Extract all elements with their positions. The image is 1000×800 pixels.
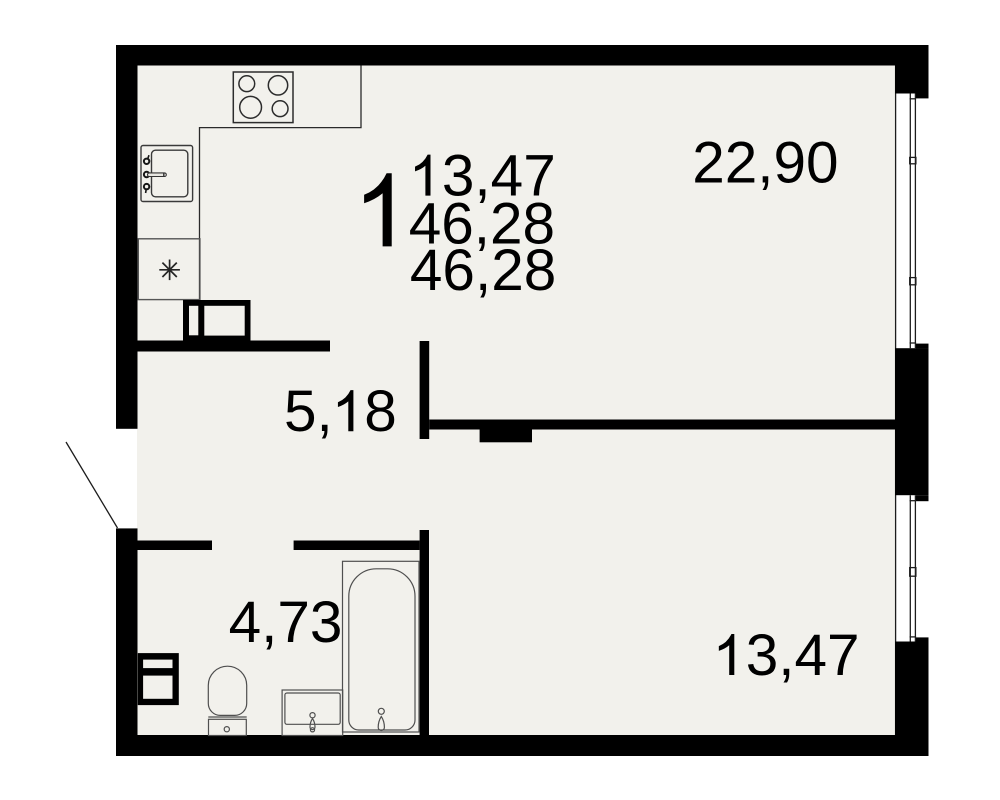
svg-text:5,: 5, bbox=[284, 379, 333, 444]
svg-text:46,28: 46,28 bbox=[410, 238, 556, 303]
svg-text:3,47: 3,47 bbox=[746, 623, 860, 688]
svg-text:22,90: 22,90 bbox=[692, 130, 838, 195]
svg-text:8: 8 bbox=[364, 379, 397, 444]
svg-text:4,73: 4,73 bbox=[229, 590, 343, 655]
